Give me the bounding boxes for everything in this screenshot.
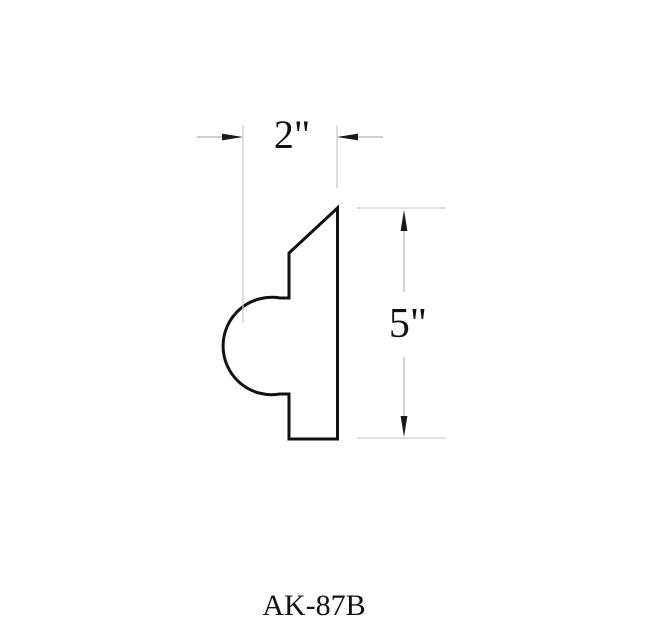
molding-profile bbox=[223, 208, 337, 439]
height-dimension-label: 5" bbox=[389, 301, 427, 347]
height-dimension: 5" bbox=[357, 208, 446, 438]
arrow-left-icon bbox=[337, 134, 358, 141]
arrow-right-icon bbox=[222, 134, 243, 141]
product-code-label: AK-87B bbox=[262, 589, 365, 620]
profile-outline-shape bbox=[223, 208, 337, 439]
width-dimension-label: 2" bbox=[274, 112, 310, 157]
profile-drawing-svg: 2" 5" AK-87B bbox=[0, 0, 650, 620]
arrow-down-icon bbox=[401, 416, 408, 437]
drawing-canvas: 2" 5" AK-87B bbox=[0, 0, 650, 620]
arrow-up-icon bbox=[401, 210, 408, 231]
